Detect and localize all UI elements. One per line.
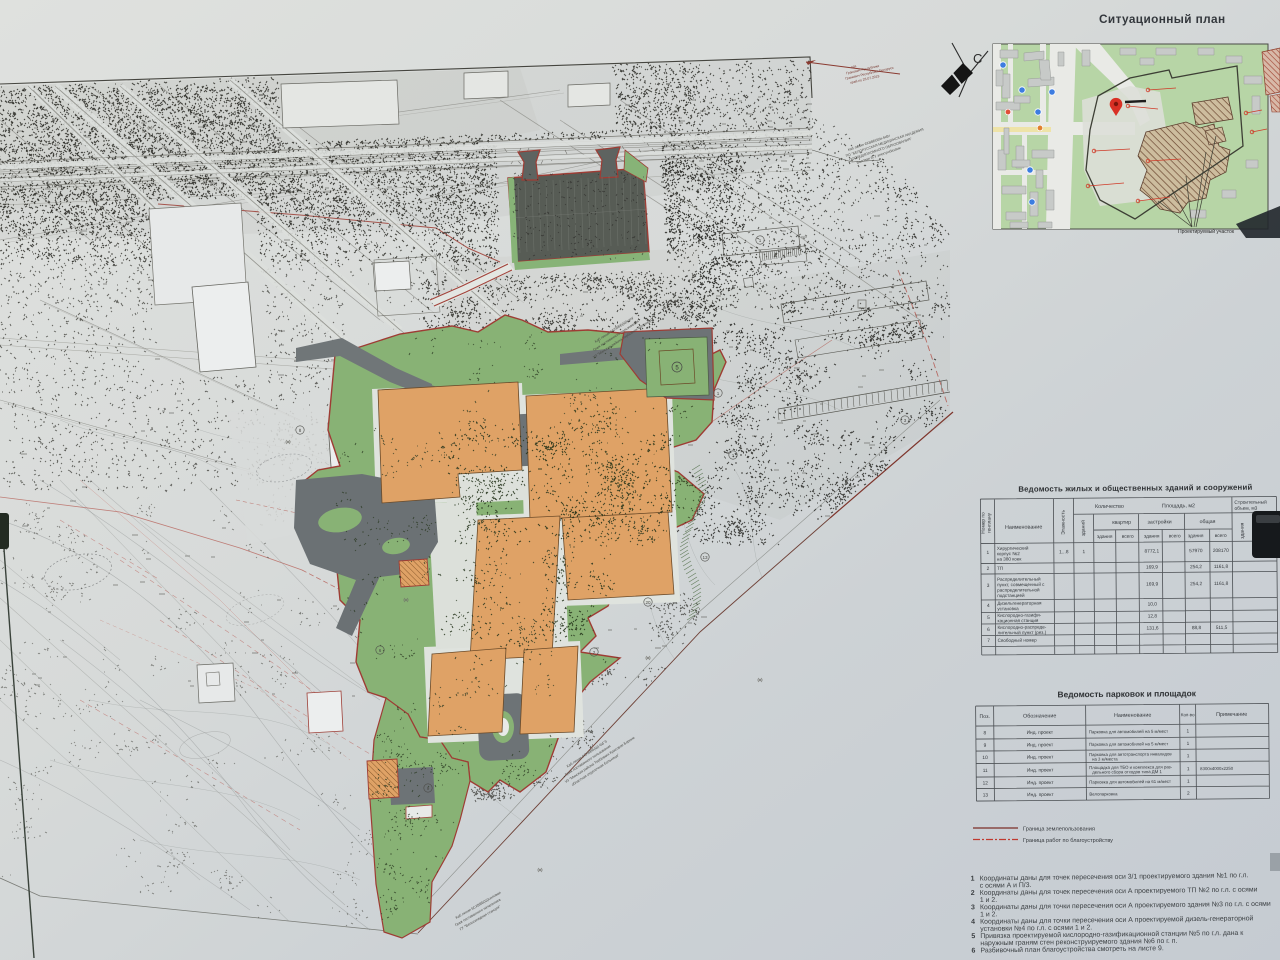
svg-text:4: 4: [971, 919, 975, 926]
svg-text:Наименование: Наименование: [1114, 713, 1151, 719]
svg-text:кационная станция: кационная станция: [997, 618, 1038, 623]
svg-text:1...8: 1...8: [1059, 549, 1069, 555]
svg-text:Распределительный: Распределительный: [997, 576, 1041, 582]
svg-text:1: 1: [1186, 729, 1189, 735]
svg-text:Номер по: Номер по: [980, 512, 986, 534]
svg-text:8300х4000х2250: 8300х4000х2250: [1200, 766, 1234, 771]
svg-text:подстанцией: подстанцией: [997, 592, 1025, 598]
svg-text:Инд. проект: Инд. проект: [1027, 754, 1054, 760]
svg-text:на 3 м/места: на 3 м/места: [1092, 756, 1118, 761]
svg-text:Свободный номер: Свободный номер: [998, 637, 1038, 643]
svg-text:всего: всего: [1215, 534, 1227, 539]
svg-text:Хирургический: Хирургический: [997, 545, 1029, 551]
svg-text:6: 6: [379, 648, 382, 653]
svg-text:5: 5: [971, 933, 975, 940]
svg-text:всего: всего: [1169, 534, 1181, 539]
svg-text:3: 3: [971, 904, 975, 911]
svg-text:здания: здания: [1144, 534, 1160, 539]
svg-text:2: 2: [987, 566, 990, 572]
svg-text:1: 1: [1187, 779, 1190, 785]
svg-text:Обозначение: Обозначение: [1023, 713, 1056, 719]
svg-text:Инд. проект: Инд. проект: [1027, 792, 1054, 798]
svg-text:5: 5: [987, 615, 990, 621]
svg-text:1: 1: [1187, 753, 1190, 759]
svg-text:3: 3: [987, 583, 990, 589]
svg-text:2: 2: [593, 650, 596, 655]
svg-text:169,9: 169,9: [1146, 564, 1158, 570]
svg-text:Инд. проект: Инд. проект: [1027, 730, 1054, 736]
svg-text:Проектируемый участок: Проектируемый участок: [1178, 228, 1235, 235]
svg-text:Парковка для автомобилей на 5: Парковка для автомобилей на 5 м/мест: [1089, 729, 1168, 735]
svg-text:общая: общая: [1200, 519, 1216, 525]
svg-text:4: 4: [987, 603, 990, 609]
svg-text:установка: установка: [997, 606, 1019, 611]
svg-text:Количество: Количество: [1095, 504, 1124, 510]
svg-text:1161,8: 1161,8: [1214, 581, 1229, 587]
svg-text:1: 1: [986, 550, 989, 556]
svg-text:7: 7: [987, 638, 990, 644]
svg-text:квартир: квартир: [1112, 520, 1131, 526]
svg-text:169,9: 169,9: [1146, 581, 1158, 587]
svg-text:2: 2: [1187, 791, 1190, 797]
svg-text:2: 2: [971, 890, 975, 897]
svg-text:3: 3: [904, 418, 907, 423]
svg-text:Дизельгенераторная: Дизельгенераторная: [997, 601, 1042, 606]
svg-text:дельного сбора отходов типа ДМ: дельного сбора отходов типа ДМ 1: [1092, 769, 1162, 775]
svg-text:здания: здания: [1240, 522, 1246, 538]
svg-text:здания: здания: [1097, 535, 1113, 540]
svg-text:8: 8: [983, 730, 986, 736]
svg-text:здания: здания: [1188, 534, 1204, 539]
svg-text:Ситуационный план: Ситуационный план: [1099, 12, 1225, 26]
svg-text:всего: всего: [1122, 535, 1134, 540]
svg-text:Поз.: Поз.: [979, 714, 989, 720]
svg-text:8772,1: 8772,1: [1144, 548, 1159, 554]
svg-text:Граница работ по благоустройст: Граница работ по благоустройству: [1023, 837, 1113, 844]
svg-text:1: 1: [759, 238, 762, 243]
svg-text:9: 9: [427, 786, 430, 791]
svg-text:Парковка для автомобилей на 5: Парковка для автомобилей на 5 м/мест: [1089, 741, 1168, 747]
svg-text:лительный пункт (рез.): лительный пункт (рез.): [998, 629, 1047, 635]
svg-text:6: 6: [987, 627, 990, 633]
svg-text:Инд. проект: Инд. проект: [1027, 767, 1054, 773]
svg-text:10: 10: [982, 755, 988, 761]
svg-text:Инд. проект: Инд. проект: [1027, 780, 1054, 786]
svg-text:11: 11: [983, 768, 988, 774]
svg-text:1 и 2.: 1 и 2.: [980, 911, 997, 918]
svg-text:254,2: 254,2: [1190, 581, 1202, 587]
svg-text:8: 8: [299, 428, 302, 433]
svg-text:12: 12: [983, 780, 989, 786]
svg-text:на 380 коек: на 380 коек: [997, 556, 1023, 561]
svg-text:208170: 208170: [1213, 548, 1229, 554]
svg-text:Граница землепользования: Граница землепользования: [1023, 827, 1095, 833]
svg-text:12,8: 12,8: [1148, 614, 1158, 620]
svg-text:13: 13: [983, 792, 989, 798]
svg-text:Наименование: Наименование: [1005, 525, 1042, 531]
svg-text:1: 1: [717, 391, 720, 396]
svg-text:Примечание: Примечание: [1216, 712, 1247, 718]
svg-text:10,0: 10,0: [1148, 602, 1158, 608]
svg-text:511,5: 511,5: [1216, 625, 1228, 631]
svg-text:пункт, совмещенный с: пункт, совмещенный с: [997, 581, 1045, 587]
svg-text:88,8: 88,8: [1192, 625, 1202, 631]
svg-text:254,2: 254,2: [1190, 564, 1202, 570]
svg-text:С: С: [973, 51, 982, 66]
svg-text:13: 13: [702, 555, 708, 560]
svg-text:1: 1: [971, 876, 975, 883]
svg-text:1: 1: [732, 453, 735, 458]
svg-text:распределительной: распределительной: [997, 586, 1040, 592]
svg-text:Ведомость парковок и площадок: Ведомость парковок и площадок: [1057, 688, 1196, 699]
svg-text:Парковка для автомобилей на 61: Парковка для автомобилей на 61 м/мест: [1089, 779, 1171, 785]
svg-text:зданий: зданий: [1080, 520, 1087, 536]
svg-text:6: 6: [971, 948, 975, 955]
svg-text:корпус №2: корпус №2: [997, 551, 1020, 556]
svg-text:131,6: 131,6: [1146, 625, 1158, 631]
svg-text:объем, м3: объем, м3: [1234, 506, 1257, 512]
svg-text:20: 20: [645, 600, 651, 605]
svg-text:Этажность: Этажность: [1060, 509, 1066, 534]
svg-text:генплану: генплану: [987, 512, 992, 533]
svg-text:Инд. проект: Инд. проект: [1027, 742, 1054, 748]
svg-text:1: 1: [1082, 549, 1085, 555]
svg-text:ТП: ТП: [997, 566, 1003, 571]
svg-text:57970: 57970: [1189, 548, 1203, 554]
svg-text:1161,8: 1161,8: [1214, 564, 1229, 570]
svg-text:Велопарковка: Велопарковка: [1089, 791, 1118, 796]
svg-text:Кол-во: Кол-во: [1181, 712, 1195, 717]
svg-text:9: 9: [984, 743, 987, 749]
svg-text:1: 1: [1187, 766, 1190, 772]
svg-text:1: 1: [1187, 741, 1190, 747]
svg-text:1 и 2.: 1 и 2.: [980, 897, 997, 904]
svg-text:застройки: застройки: [1148, 518, 1172, 525]
svg-text:Площадь, м2: Площадь, м2: [1162, 503, 1195, 509]
